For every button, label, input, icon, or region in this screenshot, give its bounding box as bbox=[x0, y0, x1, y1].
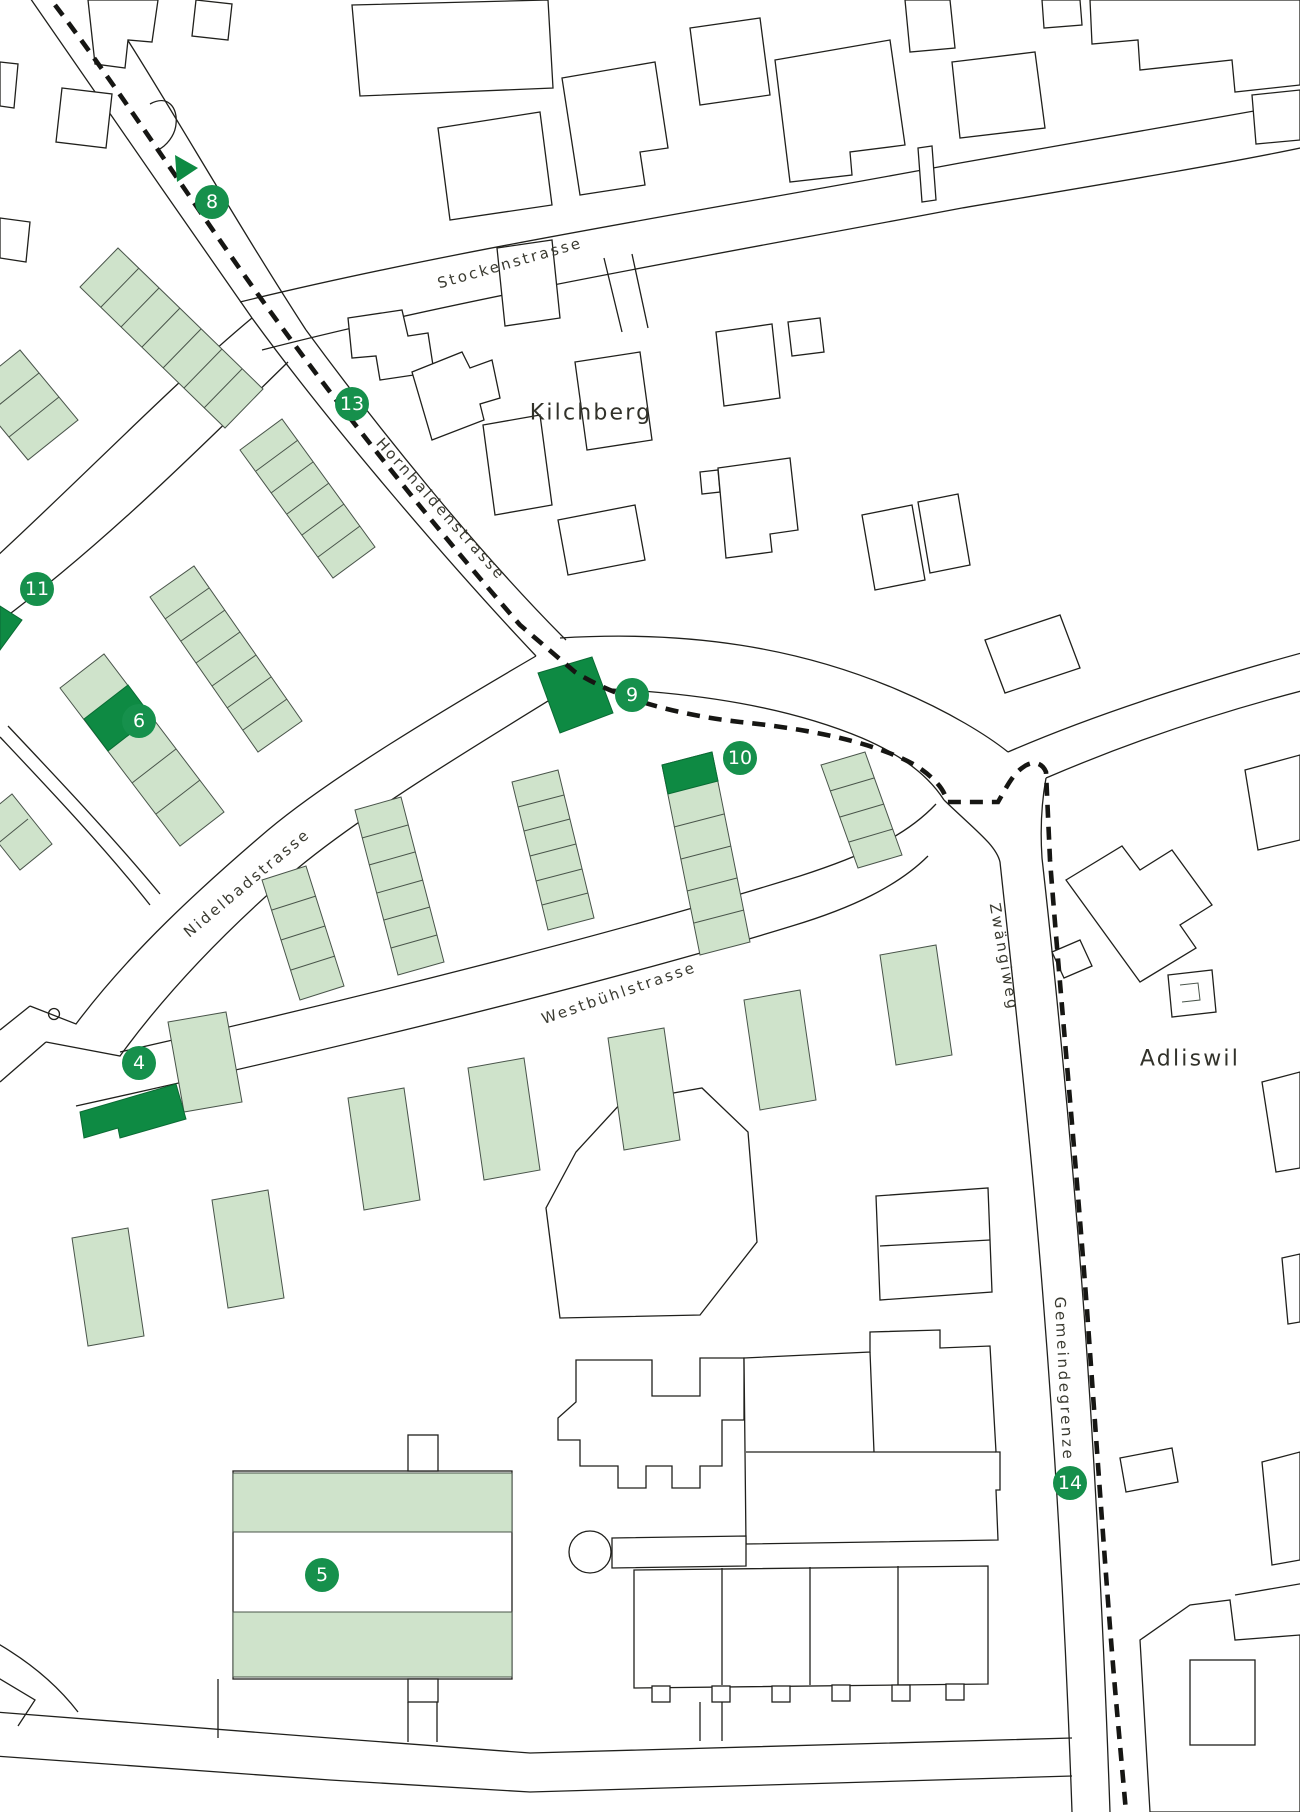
map-marker-5[interactable]: 5 bbox=[305, 1558, 339, 1592]
map-marker-8[interactable]: 8 bbox=[195, 185, 229, 219]
place-label-adliswil: Adliswil bbox=[1140, 1047, 1240, 1072]
site-map: Stockenstrasse Hornhaldenstrasse Nidelba… bbox=[0, 0, 1300, 1812]
highlight-building-11 bbox=[0, 606, 22, 650]
highlight-building-4 bbox=[80, 1084, 186, 1138]
map-marker-13[interactable]: 13 bbox=[335, 387, 369, 421]
map-marker-6[interactable]: 6 bbox=[122, 704, 156, 738]
map-marker-11[interactable]: 11 bbox=[20, 572, 54, 606]
map-marker-10[interactable]: 10 bbox=[723, 741, 757, 775]
highlight-building-9 bbox=[538, 657, 613, 733]
building-5 bbox=[233, 1435, 512, 1702]
map-marker-14[interactable]: 14 bbox=[1053, 1466, 1087, 1500]
place-label-kilchberg: Kilchberg bbox=[530, 401, 653, 426]
map-drawing bbox=[0, 0, 1300, 1812]
map-marker-9[interactable]: 9 bbox=[615, 678, 649, 712]
route-arrow-icon bbox=[175, 155, 198, 182]
map-marker-4[interactable]: 4 bbox=[122, 1046, 156, 1080]
